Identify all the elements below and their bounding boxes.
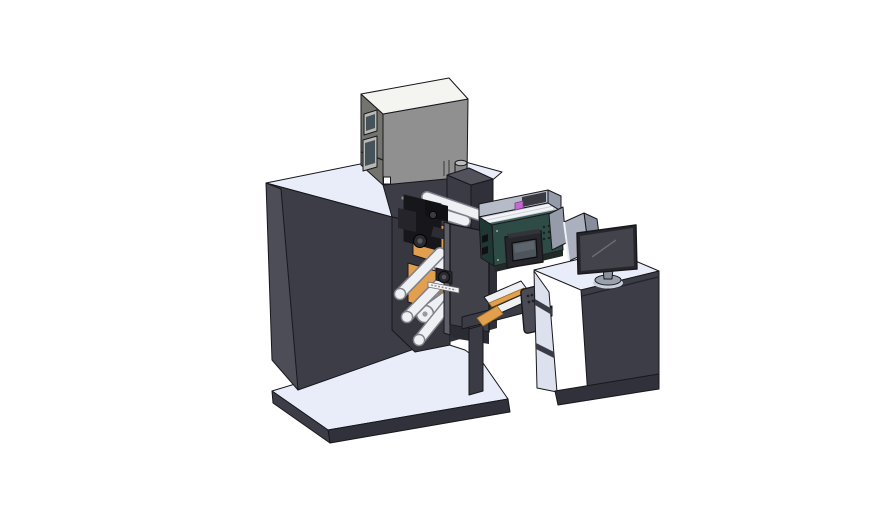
shield-panel-left [549, 207, 566, 250]
screw-dot [496, 230, 498, 232]
screw-dot [497, 259, 499, 261]
vent-dot [543, 232, 545, 234]
vent-dot [548, 231, 550, 233]
printer-unit [361, 78, 468, 185]
vent-dot [543, 238, 545, 240]
machine-render [0, 0, 888, 522]
cad-viewport [0, 0, 888, 522]
inspection-sensor [515, 201, 523, 210]
pendant-button [532, 300, 535, 303]
desk-compartment [534, 271, 557, 392]
printer-latch [384, 177, 391, 184]
stand-leg [469, 325, 483, 395]
vent-dot [543, 226, 545, 228]
printer-window-lower-glass [365, 140, 375, 166]
pendant-button [528, 301, 531, 304]
operator-desk [534, 251, 659, 405]
pendant-button [527, 295, 530, 298]
hmi-panel [505, 229, 543, 268]
printer-window-upper-glass [366, 114, 375, 131]
vent-dot [548, 237, 550, 239]
pendant-button [531, 294, 534, 297]
